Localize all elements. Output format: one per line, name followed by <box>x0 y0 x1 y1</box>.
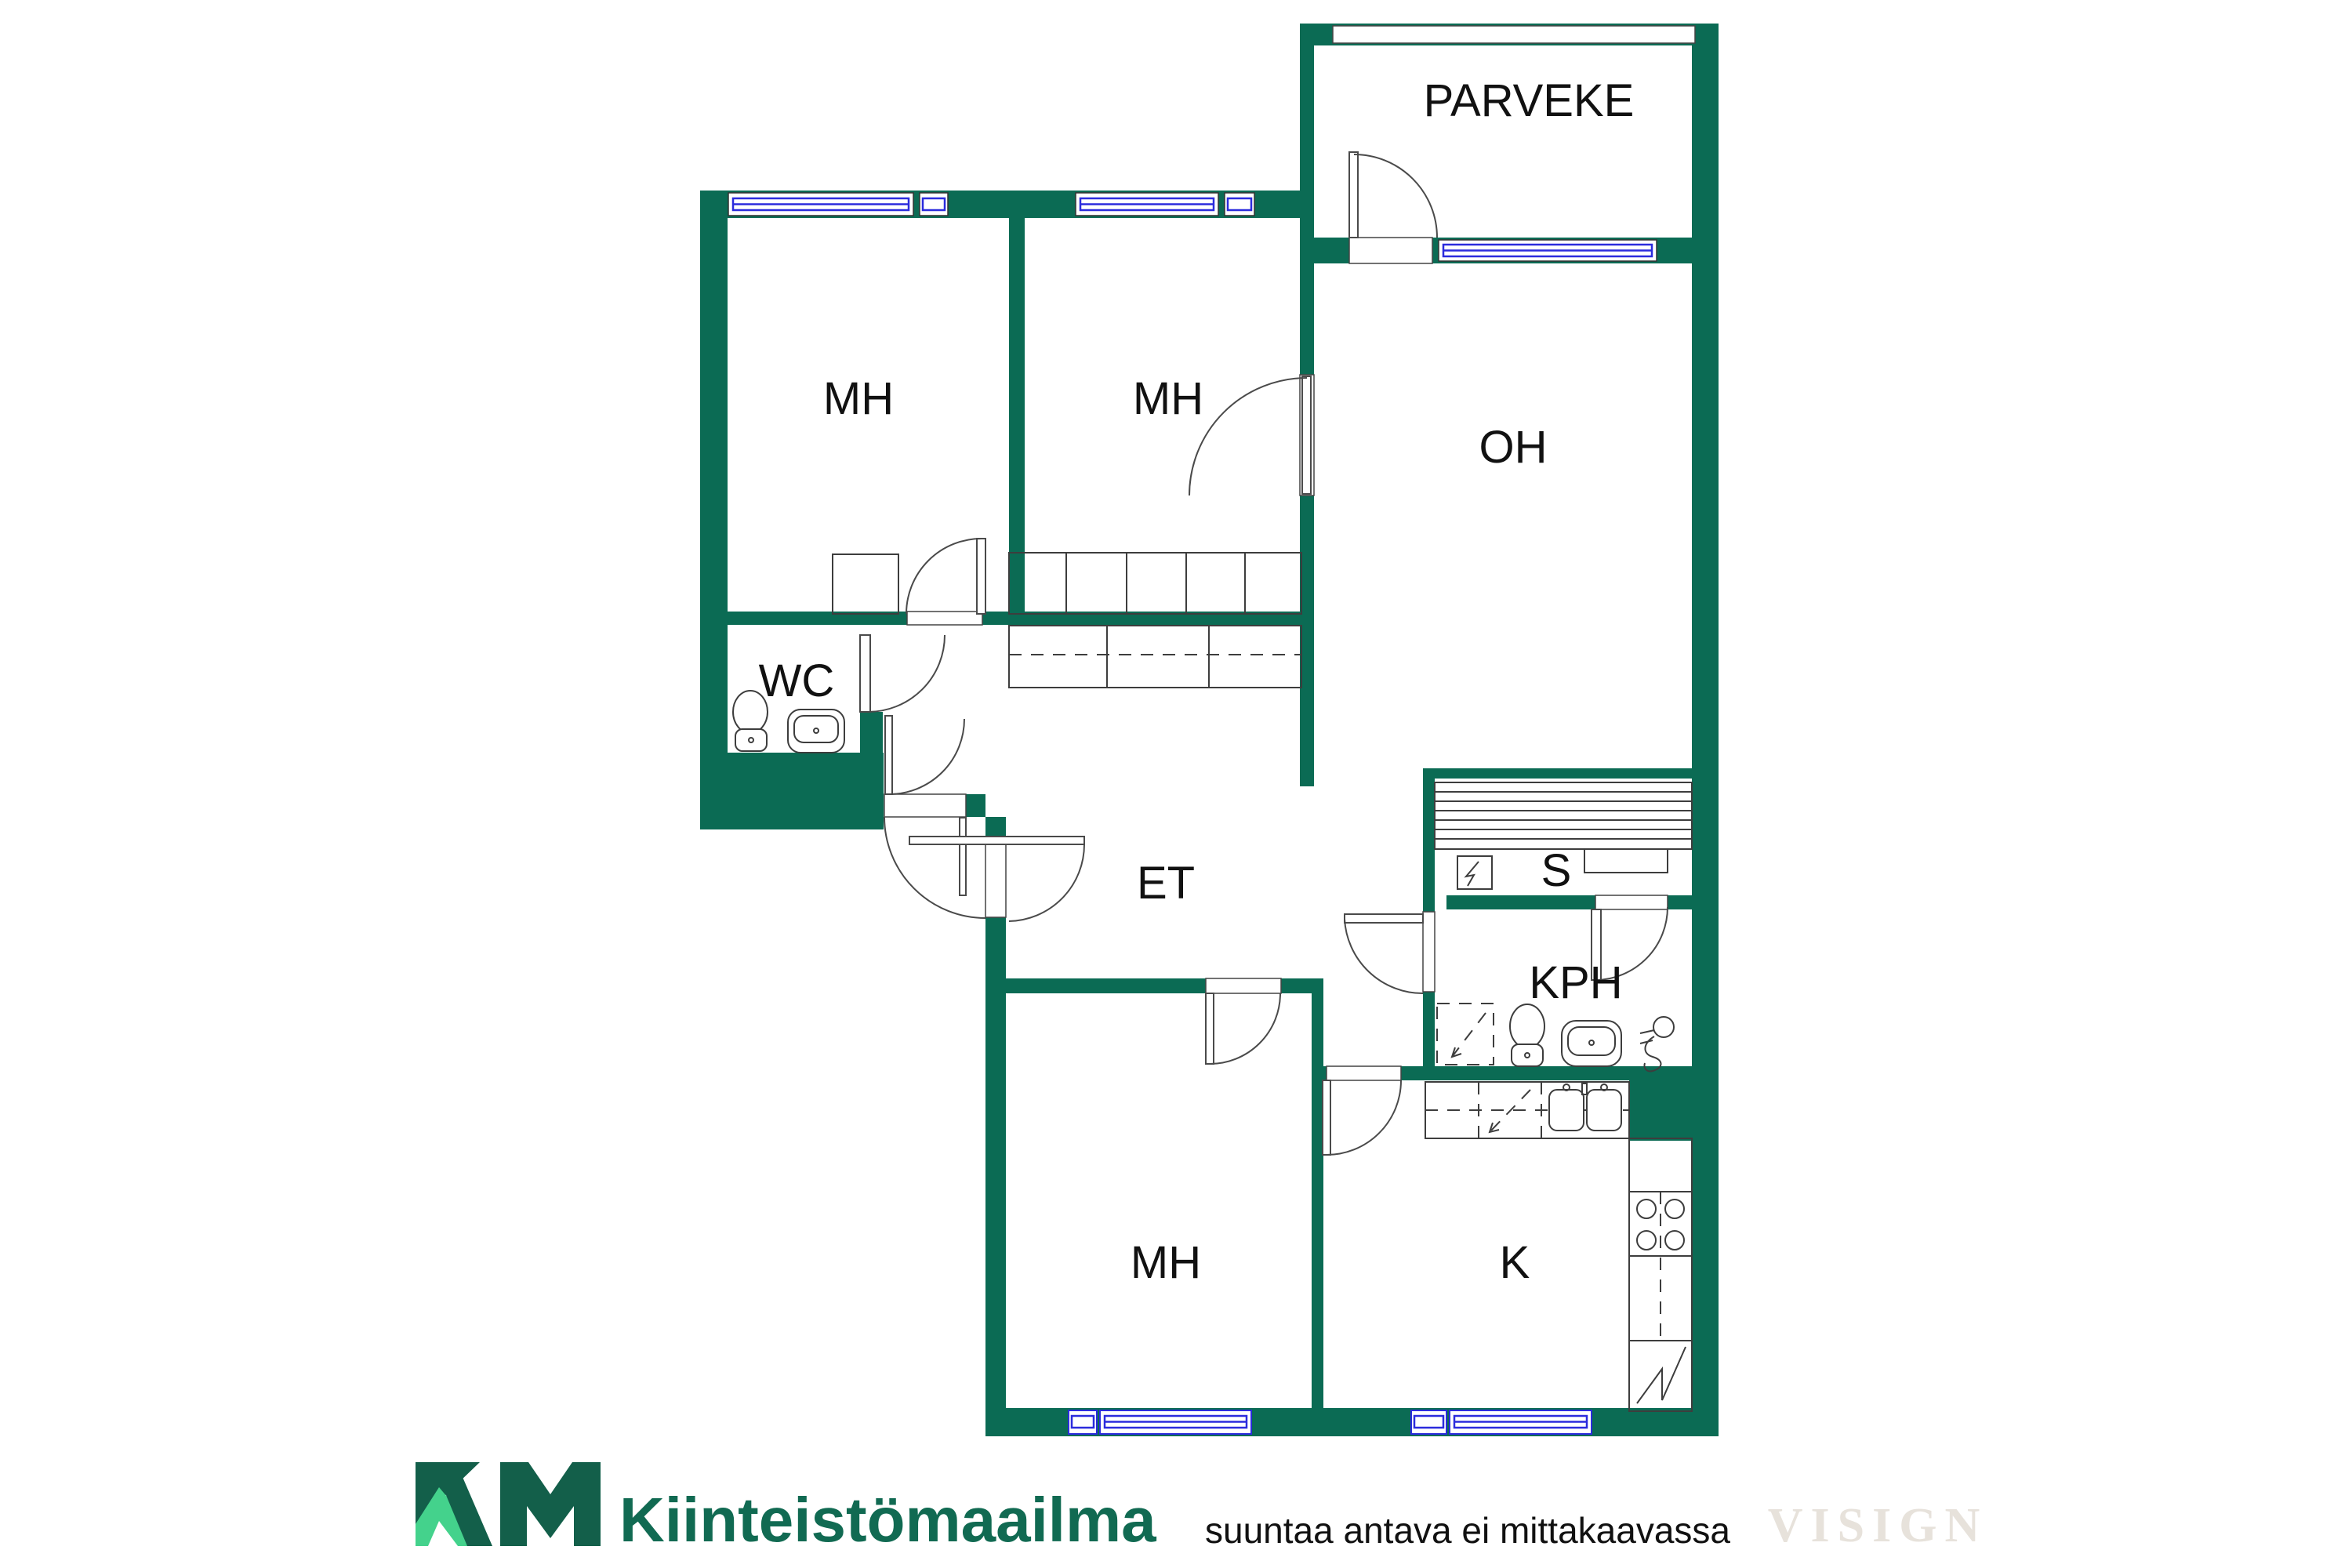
disclaimer-text: suuntaa antava ei mittakaavassa <box>1205 1510 1730 1551</box>
door-swing-icon <box>860 635 945 712</box>
watermark: VISIGN <box>1768 1499 1988 1552</box>
door-swing-icon <box>884 817 985 918</box>
km-logo: Kiinteistömaailma <box>416 1462 1156 1555</box>
door-swing-icon <box>906 539 985 614</box>
toilet-icon <box>1510 1004 1544 1066</box>
door-swing-icon <box>885 716 964 794</box>
balcony-railing <box>1333 26 1695 43</box>
window-icon <box>1439 240 1657 261</box>
shower-icon <box>1640 1017 1674 1071</box>
door-swing-icon <box>1349 152 1437 238</box>
wardrobe <box>833 554 898 614</box>
door-swing-icon <box>1189 376 1311 495</box>
sink-icon <box>1562 1021 1621 1066</box>
room-label-et: ET <box>1137 858 1195 909</box>
wardrobe-row <box>1009 553 1301 614</box>
room-label-oh: OH <box>1479 422 1548 473</box>
walls <box>700 24 1719 1436</box>
room-label-wc: WC <box>759 655 835 706</box>
floor-plan-canvas: PARVEKE MH MH OH WC ET S KPH MH K Kiinte… <box>0 0 2352 1568</box>
kitchen-sink-icon <box>1549 1083 1621 1131</box>
window-icon <box>1069 1410 1251 1434</box>
washing-machine-slot <box>1437 1004 1494 1065</box>
km-logo-text: Kiinteistömaailma <box>619 1485 1156 1555</box>
room-label-parveke: PARVEKE <box>1424 75 1635 126</box>
window-icon <box>1076 193 1254 216</box>
fridge-icon <box>1637 1347 1686 1403</box>
sauna-heater-icon <box>1457 856 1492 889</box>
km-logo-m <box>500 1462 601 1546</box>
room-label-kph: KPH <box>1529 957 1622 1008</box>
window-icon <box>1411 1410 1592 1434</box>
room-label-k: K <box>1500 1237 1530 1288</box>
hall-closet-row <box>1009 626 1301 688</box>
door-swing-icon <box>1206 993 1280 1064</box>
room-label-mh3: MH <box>1131 1237 1201 1288</box>
sink-icon <box>788 710 844 753</box>
room-label-mh1: MH <box>823 373 894 424</box>
door-swing-icon <box>1345 914 1423 993</box>
room-label-mh2: MH <box>1133 373 1203 424</box>
room-label-s: S <box>1541 845 1572 896</box>
door-swing-icon <box>1323 1080 1401 1155</box>
